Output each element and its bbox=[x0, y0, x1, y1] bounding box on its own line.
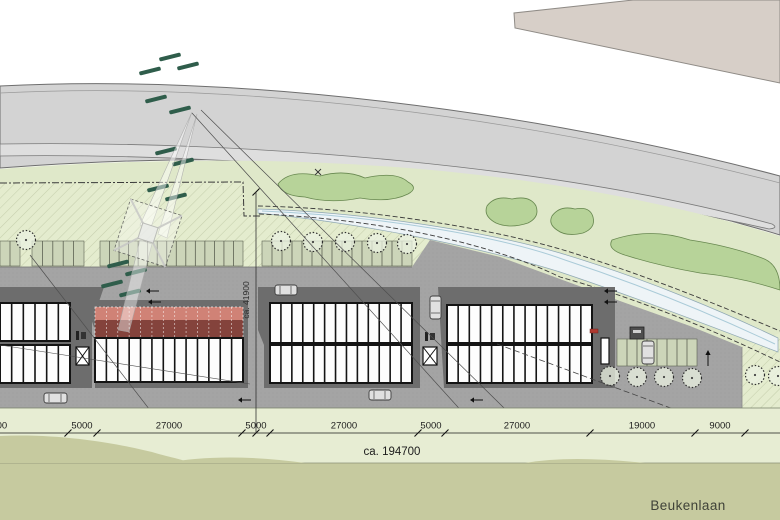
dimension-value-label: 5000 bbox=[71, 421, 92, 432]
tree-trunk bbox=[777, 375, 779, 377]
utility-box-detail bbox=[633, 330, 641, 333]
tree-trunk bbox=[280, 240, 282, 242]
building-B-red-roof-light bbox=[95, 307, 243, 320]
dimension-value-label: 27000 bbox=[504, 421, 530, 432]
site-plan-drawing: 2700050002700050002700050002700019000900… bbox=[0, 0, 780, 520]
tree-trunk bbox=[691, 377, 693, 379]
bike-rack-icon bbox=[81, 332, 86, 339]
shrub-3 bbox=[551, 208, 594, 235]
tree-trunk bbox=[312, 241, 314, 243]
tree-trunk bbox=[344, 241, 346, 243]
bike-rack-icon bbox=[76, 331, 79, 340]
car bbox=[369, 390, 391, 400]
vertical-dimension-label: ca. 41900 bbox=[241, 281, 251, 319]
tree-trunk bbox=[406, 243, 408, 245]
car bbox=[642, 341, 654, 364]
street-name-label: Beukenlaan bbox=[650, 498, 725, 513]
tree-trunk bbox=[25, 239, 27, 241]
bike-rack-icon bbox=[425, 332, 428, 341]
tree-trunk bbox=[376, 242, 378, 244]
car bbox=[430, 296, 441, 319]
dimension-value-label: 9000 bbox=[709, 421, 730, 432]
tree-trunk bbox=[754, 374, 756, 376]
tree-trunk bbox=[609, 375, 611, 377]
tree-trunk bbox=[636, 376, 638, 378]
car bbox=[275, 285, 297, 295]
shrub-2 bbox=[486, 198, 537, 226]
dimension-value-label: 19000 bbox=[629, 421, 655, 432]
parking-stall-group bbox=[32, 241, 84, 266]
dimension-value-label: 27000 bbox=[331, 421, 357, 432]
dimension-value-label: 27000 bbox=[156, 421, 182, 432]
car bbox=[44, 393, 67, 403]
shrub-1 bbox=[278, 173, 414, 201]
site-plan-canvas: 2700050002700050002700050002700019000900… bbox=[0, 0, 780, 520]
dimension-value-label: 5000 bbox=[420, 421, 441, 432]
building-D-end-unit bbox=[601, 338, 609, 364]
red-marker-icon bbox=[590, 329, 598, 333]
building-B-red-roof-dark bbox=[95, 320, 243, 338]
dimension-value-label: 27000 bbox=[0, 421, 7, 432]
total-dimension-label: ca. 194700 bbox=[364, 446, 421, 458]
tree-trunk bbox=[663, 376, 665, 378]
